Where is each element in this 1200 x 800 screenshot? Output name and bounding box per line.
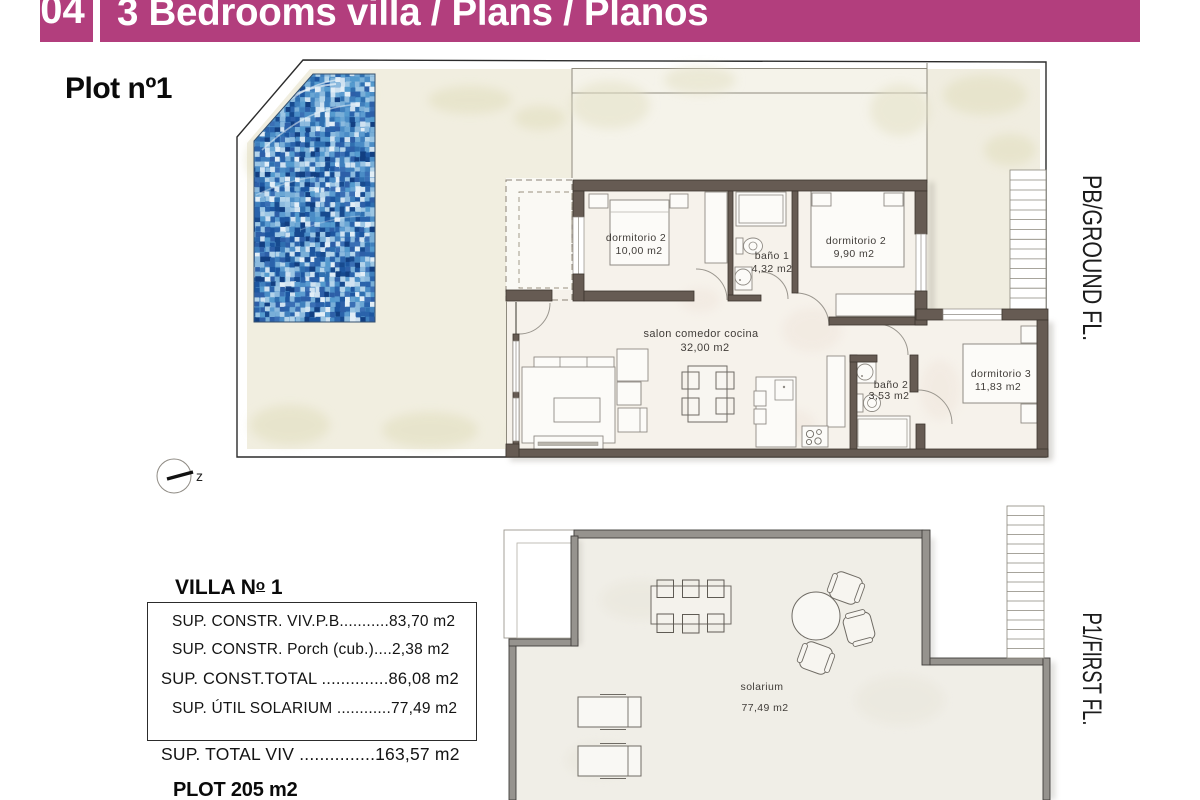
- svg-text:dormitorio 2: dormitorio 2: [606, 232, 666, 244]
- svg-text:32,00 m2: 32,00 m2: [680, 342, 729, 354]
- svg-text:baño 1: baño 1: [755, 250, 790, 262]
- svg-text:10,00 m2: 10,00 m2: [616, 245, 663, 257]
- svg-text:dormitorio 3: dormitorio 3: [971, 368, 1031, 380]
- svg-text:z: z: [196, 468, 203, 484]
- svg-text:dormitorio 2: dormitorio 2: [826, 235, 886, 247]
- svg-text:PB/GROUND FL.: PB/GROUND FL.: [1077, 175, 1107, 341]
- svg-text:4,32 m2: 4,32 m2: [752, 263, 793, 275]
- svg-text:77,49 m2: 77,49 m2: [742, 702, 789, 714]
- svg-text:3,53 m2: 3,53 m2: [869, 390, 910, 402]
- svg-text:P1/FIRST FL.: P1/FIRST FL.: [1077, 613, 1107, 726]
- svg-text:9,90 m2: 9,90 m2: [834, 248, 875, 260]
- svg-text:11,83 m2: 11,83 m2: [975, 381, 1021, 393]
- svg-text:salon comedor cocina: salon comedor cocina: [643, 328, 758, 340]
- svg-text:solarium: solarium: [741, 681, 784, 693]
